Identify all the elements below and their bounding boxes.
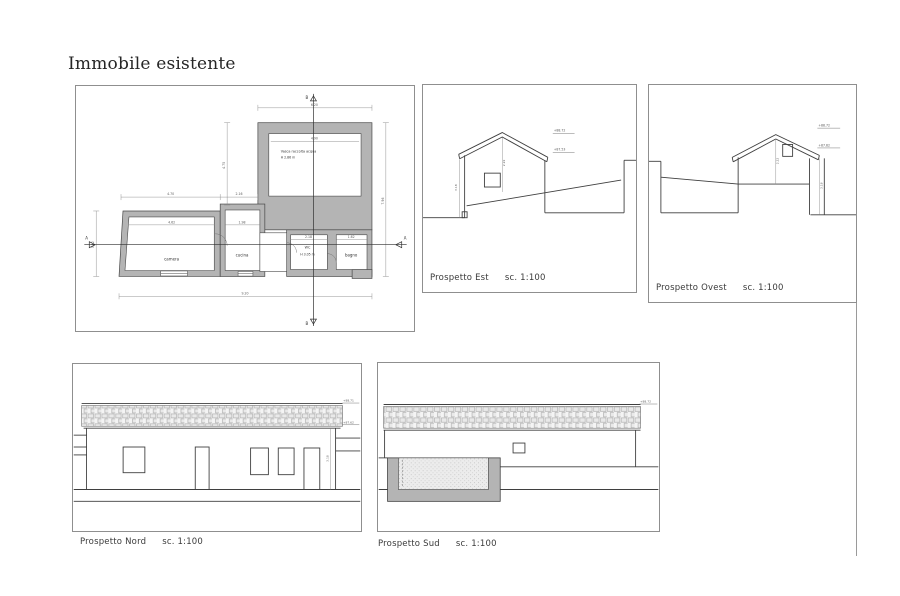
room-label-cucina: cucina (236, 253, 249, 258)
room-label-vasca: Vasca raccolta acqua (281, 149, 317, 153)
svg-text:4.75: 4.75 (222, 162, 226, 169)
est-caption-name: Prospetto Est (430, 273, 489, 283)
svg-text:9.20: 9.20 (241, 291, 248, 295)
nord-outline (74, 404, 361, 502)
sud-caption-scale: sc. 1:100 (456, 539, 497, 549)
section-letter-right: A (404, 236, 407, 241)
prospetto-est-panel: 2.22 3.18 +88.72 +87.53 Prospetto Estsc.… (422, 84, 637, 293)
svg-text:1.98: 1.98 (239, 220, 246, 224)
ovest-caption-name: Prospetto Ovest (656, 283, 727, 293)
svg-text:3.18: 3.18 (454, 184, 458, 191)
drawing-sheet: Immobile esistente (0, 0, 900, 596)
est-level-eave: +87.53 (554, 147, 566, 151)
prospetto-nord-drawing: 3.18 +88.71 +87.62 (73, 364, 361, 531)
prospetto-sud-drawing: +88.72 (378, 363, 659, 531)
ovest-level-top: +88.72 (818, 124, 830, 128)
room-label-wc: WC (305, 246, 311, 250)
est-caption-scale: sc. 1:100 (505, 273, 546, 283)
sud-level-top: +88.72 (640, 400, 651, 404)
prospetto-sud-caption: Prospetto Sudsc. 1:100 (378, 539, 497, 549)
est-dim-lines (460, 137, 503, 217)
nord-caption-name: Prospetto Nord (80, 537, 146, 547)
svg-text:2.22: 2.22 (502, 159, 506, 166)
est-level-top: +88.72 (554, 129, 566, 133)
section-letter-bottom: B (306, 321, 309, 326)
prospetto-sud-panel: +88.72 (377, 362, 660, 532)
svg-text:2.16: 2.16 (236, 192, 243, 196)
floor-plan-panel: 6.20 4.90 4.75 7.96 4.70 2.16 9.20 3.12 … (75, 85, 415, 332)
prospetto-nord-caption: Prospetto Nordsc. 1:100 (80, 537, 203, 547)
svg-text:2.22: 2.22 (776, 158, 780, 165)
ovest-level-eave: +87.62 (818, 143, 830, 147)
svg-text:7.96: 7.96 (381, 198, 385, 205)
prospetto-ovest-caption: Prospetto Ovestsc. 1:100 (656, 283, 784, 293)
svg-text:4.90: 4.90 (311, 137, 318, 141)
prospetto-est-drawing: 2.22 3.18 +88.72 +87.53 (423, 85, 636, 292)
nord-caption-scale: sc. 1:100 (162, 537, 203, 547)
prospetto-est-caption: Prospetto Estsc. 1:100 (430, 273, 546, 283)
room-label-bagno: bagno (345, 253, 358, 258)
svg-text:4.62: 4.62 (168, 220, 175, 224)
nord-level-markers: +88.71 +87.62 (342, 399, 359, 425)
svg-text:1.62: 1.62 (348, 235, 355, 239)
est-dim-labels: 2.22 3.18 (454, 159, 506, 190)
room-label-vasca-height: H 2.86 m (281, 155, 295, 159)
floor-plan-drawing: 6.20 4.90 4.75 7.96 4.70 2.16 9.20 3.12 … (76, 86, 414, 331)
svg-text:3.18: 3.18 (326, 455, 330, 462)
nord-level-top: +88.71 (343, 399, 354, 403)
prospetto-ovest-drawing: 2.22 3.18 +88.72 +87.62 (649, 85, 856, 302)
svg-text:6.20: 6.20 (311, 103, 318, 107)
page-title: Immobile esistente (68, 54, 236, 74)
room-label-camera: camera (164, 257, 180, 262)
prospetto-nord-panel: 3.18 +88.71 +87.62 (72, 363, 362, 532)
svg-text:3.18: 3.18 (819, 182, 823, 189)
section-letter-left: A (85, 236, 88, 241)
room-label-wc-height: H 3.05 m (300, 253, 314, 257)
ovest-level-markers: +88.72 +87.62 (817, 124, 840, 148)
section-letter-top: B (306, 95, 309, 100)
prospetto-ovest-panel: 2.22 3.18 +88.72 +87.62 Prospetto Ovests… (648, 84, 857, 303)
sud-tank (388, 458, 501, 501)
nord-dim-labels: 3.18 (326, 455, 330, 462)
svg-text:2.18: 2.18 (305, 235, 312, 239)
ovest-caption-scale: sc. 1:100 (743, 283, 784, 293)
sud-caption-name: Prospetto Sud (378, 539, 440, 549)
est-outline (423, 133, 636, 218)
sud-level-markers: +88.72 (640, 400, 658, 404)
est-level-markers: +88.72 +87.53 (553, 129, 575, 153)
nord-level-eave: +87.62 (343, 420, 354, 424)
svg-text:4.70: 4.70 (167, 192, 174, 196)
